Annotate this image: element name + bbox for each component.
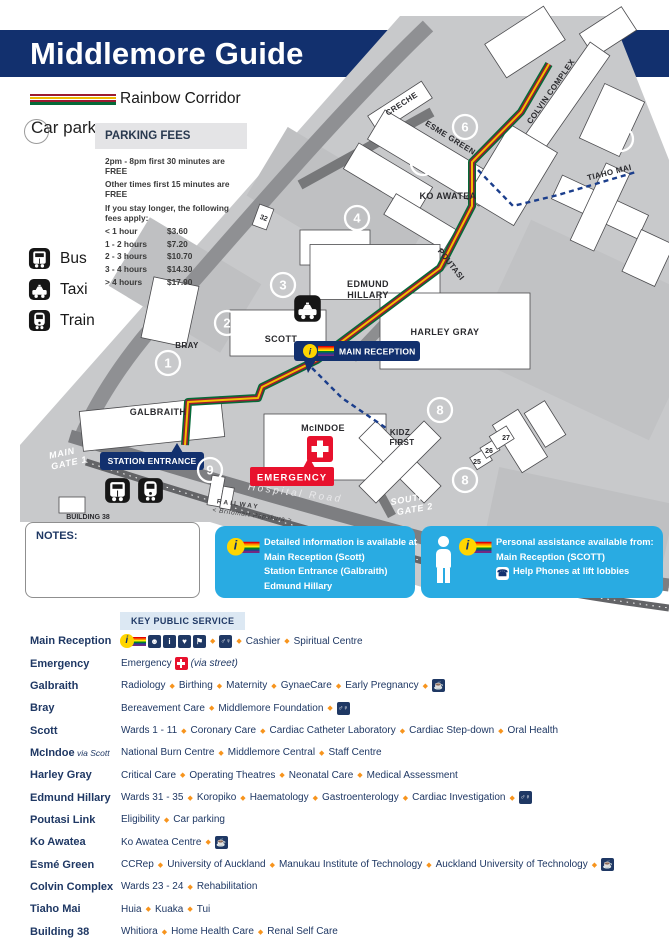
service-text: Huia (121, 904, 142, 915)
diamond-separator: ◆ (336, 682, 341, 690)
diamond-separator: ◆ (209, 704, 214, 712)
diamond-separator: ◆ (426, 861, 431, 869)
svg-text:1: 1 (164, 356, 171, 371)
car-park-label: Car park (31, 118, 96, 138)
service-items: Whitiora◆Home Health Care◆Renal Self Car… (120, 926, 339, 937)
svg-text:STATION ENTRANCE: STATION ENTRANCE (108, 456, 197, 466)
diamond-separator: ◆ (240, 794, 245, 802)
diamond-separator: ◆ (403, 794, 408, 802)
service-text: National Burn Centre (121, 747, 214, 758)
service-text: Car parking (173, 814, 225, 825)
services-list: Main Receptioni☻i♥⚑◆♂♀◆Cashier◆Spiritual… (0, 630, 669, 943)
fee-row: > 4 hours$17.90 (105, 277, 247, 287)
svg-text:2: 2 (223, 316, 230, 331)
service-text: Cardiac Investigation (412, 792, 505, 803)
service-text: Cardiac Step-down (409, 725, 494, 736)
service-text: Rehabilitation (197, 881, 258, 892)
service-row: Edmund HillaryWards 31 - 35◆Koropiko◆Hae… (0, 786, 669, 808)
cafe-icon: ☕ (601, 858, 614, 871)
svg-text:MAIN RECEPTION: MAIN RECEPTION (339, 347, 415, 357)
label-building-26: 26 (485, 448, 493, 455)
service-building-label: Main Reception (30, 635, 120, 647)
service-items: Radiology◆Birthing◆Maternity◆GynaeCare◆E… (120, 679, 446, 692)
rainbow-corridor-swatch (30, 94, 116, 105)
phone-icon: ☎ (496, 567, 509, 580)
label-bray: BRAY (175, 341, 199, 350)
parking-fees-title: PARKING FEES (95, 123, 247, 149)
care-icon: ♥ (178, 635, 191, 648)
service-items: Wards 31 - 35◆Koropiko◆Haematology◆Gastr… (120, 791, 533, 804)
shop-icon: ⚑ (193, 635, 206, 648)
label-scott: SCOTT (265, 334, 298, 344)
service-items: Eligibility◆Car parking (120, 814, 226, 825)
train-icon (138, 478, 163, 503)
label-building-38: BUILDING 38 (66, 514, 110, 521)
service-row: Colvin ComplexWards 23 - 24◆Rehabilitati… (0, 876, 669, 898)
info-rainbow-icon: i (120, 634, 147, 648)
service-text: Medical Assessment (367, 770, 458, 781)
svg-text:8: 8 (461, 473, 468, 488)
service-text: Eligibility (121, 814, 160, 825)
service-items: CCRep◆University of Auckland◆Manukau Ins… (120, 858, 615, 871)
service-text: Operating Theatres (189, 770, 275, 781)
service-text: Bereavement Care (121, 703, 205, 714)
service-row: Main Receptioni☻i♥⚑◆♂♀◆Cashier◆Spiritual… (0, 630, 669, 652)
transport-legend: Bus Taxi Train (28, 247, 95, 340)
cafe-icon: ☕ (432, 679, 445, 692)
fee-row: < 1 hour$3.60 (105, 226, 247, 236)
diamond-separator: ◆ (169, 682, 174, 690)
service-text: Cardiac Catheter Laboratory (270, 725, 396, 736)
diamond-separator: ◆ (158, 861, 163, 869)
diamond-separator: ◆ (357, 771, 362, 779)
service-text: Critical Care (121, 770, 176, 781)
service-items: Bereavement Care◆Middlemore Foundation◆♂… (120, 702, 351, 715)
svg-text:6: 6 (461, 120, 468, 135)
service-text: Middlemore Foundation (218, 703, 323, 714)
service-text: Manukau Institute of Technology (279, 859, 422, 870)
diamond-separator: ◆ (187, 883, 192, 891)
service-text: Spiritual Centre (294, 636, 363, 647)
legend-item-bus: Bus (28, 247, 95, 270)
service-text: Oral Health (508, 725, 559, 736)
diamond-separator: ◆ (146, 905, 151, 913)
label-galbraith: GALBRAITH (130, 407, 187, 417)
label-mcindoe: McINDOE (301, 423, 345, 433)
info-rainbow-icon: i (227, 538, 261, 556)
service-text: Renal Self Care (267, 926, 338, 937)
car-park-icon (294, 295, 321, 322)
service-text: Auckland University of Technology (436, 859, 588, 870)
toilets-icon: ♂♀ (337, 702, 350, 715)
service-text: Early Pregnancy (345, 680, 418, 691)
diamond-separator: ◆ (423, 682, 428, 690)
service-row: BrayBereavement Care◆Middlemore Foundati… (0, 697, 669, 719)
service-text: Gastroenterology (322, 792, 399, 803)
service-text: Home Health Care (171, 926, 254, 937)
service-text: Cashier (246, 636, 280, 647)
desk-icon: ☻ (148, 635, 161, 648)
service-building-label: Edmund Hillary (30, 792, 120, 804)
service-text: (via street) (191, 658, 238, 669)
diamond-separator: ◆ (236, 637, 241, 645)
service-items: Wards 23 - 24◆Rehabilitation (120, 881, 258, 892)
service-items: i☻i♥⚑◆♂♀◆Cashier◆Spiritual Centre (120, 634, 364, 648)
service-row: Tiaho MaiHuia◆Kuaka◆Tui (0, 898, 669, 920)
diamond-separator: ◆ (510, 794, 515, 802)
toilets-icon: ♂♀ (519, 791, 532, 804)
service-building-label: Emergency (30, 658, 120, 670)
svg-text:3: 3 (279, 278, 286, 293)
service-building-label: Harley Gray (30, 769, 120, 781)
service-text: Birthing (179, 680, 213, 691)
emergency-cross-icon (175, 657, 188, 670)
fee-row: 3 - 4 hours$14.30 (105, 264, 247, 274)
service-text: Kuaka (155, 904, 183, 915)
parking-note: If you stay longer, the following fees a… (105, 203, 247, 223)
diamond-separator: ◆ (181, 727, 186, 735)
diamond-separator: ◆ (217, 682, 222, 690)
service-building-label: Esmé Green (30, 859, 120, 871)
fee-row: 1 - 2 hours$7.20 (105, 239, 247, 249)
diamond-separator: ◆ (164, 816, 169, 824)
notes-box: NOTES: (25, 522, 200, 598)
diamond-separator: ◆ (319, 749, 324, 757)
service-text: Emergency (121, 658, 172, 669)
diamond-separator: ◆ (218, 749, 223, 757)
service-building-label: Poutasi Link (30, 814, 120, 826)
service-building-label: Galbraith (30, 680, 120, 692)
emergency-cross-icon (307, 436, 333, 462)
service-items: Emergency(via street) (120, 657, 239, 670)
service-building-label: Tiaho Mai (30, 903, 120, 915)
diamond-separator: ◆ (162, 928, 167, 936)
svg-text:8: 8 (436, 403, 443, 418)
service-text: Coronary Care (191, 725, 257, 736)
info-rainbow-icon: i (459, 538, 493, 556)
diamond-separator: ◆ (187, 794, 192, 802)
service-text: Wards 31 - 35 (121, 792, 183, 803)
campus-map-svg: CRECHE ESME GREEN COLVIN COMPLEX KO AWAT… (0, 0, 669, 612)
info-icon: i (163, 635, 176, 648)
bus-icon (105, 478, 130, 503)
diamond-separator: ◆ (205, 838, 210, 846)
svg-text:5: 5 (419, 156, 426, 171)
service-text: Tui (197, 904, 211, 915)
diamond-separator: ◆ (327, 704, 332, 712)
diamond-separator: ◆ (180, 771, 185, 779)
service-row: EmergencyEmergency(via street) (0, 652, 669, 674)
service-row: GalbraithRadiology◆Birthing◆Maternity◆Gy… (0, 675, 669, 697)
label-building-25: 25 (473, 459, 481, 466)
diamond-separator: ◆ (592, 861, 597, 869)
svg-text:EMERGENCY: EMERGENCY (257, 473, 327, 484)
service-text: Koropiko (197, 792, 236, 803)
service-row: ScottWards 1 - 11◆Coronary Care◆Cardiac … (0, 719, 669, 741)
svg-text:4: 4 (353, 211, 361, 226)
service-building-label: Scott (30, 725, 120, 737)
service-text: Haematology (250, 792, 309, 803)
campus-map: CRECHE ESME GREEN COLVIN COMPLEX KO AWAT… (0, 0, 669, 612)
service-text: Whitiora (121, 926, 158, 937)
diamond-separator: ◆ (270, 861, 275, 869)
diamond-separator: ◆ (271, 682, 276, 690)
service-building-note: via Scott (75, 748, 110, 758)
legend-item-train: Train (28, 309, 95, 332)
diamond-separator: ◆ (260, 727, 265, 735)
label-kidz-first: KIDZ (390, 428, 410, 437)
service-items: Huia◆Kuaka◆Tui (120, 904, 211, 915)
rainbow-corridor-label: Rainbow Corridor (120, 90, 241, 108)
service-text: Radiology (121, 680, 165, 691)
notes-label: NOTES: (36, 530, 78, 542)
cafe-icon: ☕ (215, 836, 228, 849)
parking-note: Other times first 15 minutes are FREE (105, 179, 247, 199)
diamond-separator: ◆ (284, 637, 289, 645)
rainbow-flag-icon (318, 346, 334, 356)
diamond-separator: ◆ (187, 905, 192, 913)
svg-text:7: 7 (617, 132, 624, 147)
service-text: GynaeCare (281, 680, 332, 691)
middlemore-guide-page: Middlemore Guide (0, 0, 669, 949)
service-row: Harley GrayCritical Care◆Operating Theat… (0, 764, 669, 786)
service-row: Esmé GreenCCRep◆University of Auckland◆M… (0, 853, 669, 875)
diamond-separator: ◆ (210, 637, 215, 645)
service-text: CCRep (121, 859, 154, 870)
service-text: Wards 23 - 24 (121, 881, 183, 892)
parking-note: 2pm - 8pm first 30 minutes are FREE (105, 156, 247, 176)
bus-icon (28, 247, 51, 270)
svg-text:9: 9 (206, 463, 213, 478)
service-items: Ko Awatea Centre◆☕ (120, 836, 229, 849)
service-building-label: Bray (30, 702, 120, 714)
svg-text:HILLARY: HILLARY (347, 290, 388, 300)
service-building-label: Building 38 (30, 926, 120, 938)
toilets-icon: ♂♀ (219, 635, 232, 648)
label-edmund-hillary: EDMUND (347, 279, 389, 289)
parking-fees-panel: PARKING FEES 2pm - 8pm first 30 minutes … (95, 123, 247, 287)
service-row: Poutasi LinkEligibility◆Car parking (0, 809, 669, 831)
service-text: Middlemore Central (228, 747, 315, 758)
service-building-label: Colvin Complex (30, 881, 120, 893)
diamond-separator: ◆ (279, 771, 284, 779)
taxi-icon (28, 278, 51, 301)
service-text: Staff Centre (328, 747, 381, 758)
fee-row: 2 - 3 hours$10.70 (105, 251, 247, 261)
service-text: Neonatal Care (289, 770, 353, 781)
label-building-27: 27 (502, 435, 510, 442)
key-public-service-header: KEY PUBLIC SERVICE (120, 612, 245, 630)
personal-assistance-box: i Personal assistance available from: Ma… (421, 526, 663, 598)
diamond-separator: ◆ (400, 727, 405, 735)
label-harley-gray: HARLEY GRAY (411, 327, 480, 337)
svg-text:FIRST: FIRST (389, 438, 414, 447)
detailed-info-box: i Detailed information is available at M… (215, 526, 415, 598)
service-row: Building 38Whitiora◆Home Health Care◆Ren… (0, 920, 669, 942)
service-row: Ko AwateaKo Awatea Centre◆☕ (0, 831, 669, 853)
legend-item-taxi: Taxi (28, 278, 95, 301)
service-text: Wards 1 - 11 (121, 725, 177, 736)
service-building-label: Ko Awatea (30, 836, 120, 848)
diamond-separator: ◆ (258, 928, 263, 936)
service-items: Critical Care◆Operating Theatres◆Neonata… (120, 770, 459, 781)
diamond-separator: ◆ (498, 727, 503, 735)
service-text: Maternity (226, 680, 267, 691)
person-icon (433, 536, 455, 588)
service-building-label: McIndoe via Scott (30, 747, 120, 759)
service-items: Wards 1 - 11◆Coronary Care◆Cardiac Cathe… (120, 725, 559, 736)
service-text: University of Auckland (167, 859, 265, 870)
service-items: National Burn Centre◆Middlemore Central◆… (120, 747, 383, 758)
diamond-separator: ◆ (313, 794, 318, 802)
label-ko-awatea: KO AWATEA (419, 191, 476, 201)
service-text: Ko Awatea Centre (121, 837, 201, 848)
service-row: McIndoe via ScottNational Burn Centre◆Mi… (0, 742, 669, 764)
train-icon (28, 309, 51, 332)
